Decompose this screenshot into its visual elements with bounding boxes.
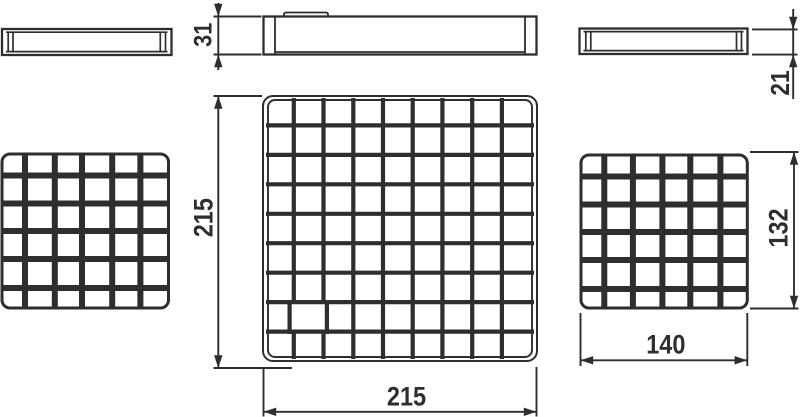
svg-text:132: 132 — [764, 208, 794, 247]
svg-text:21: 21 — [767, 70, 796, 95]
svg-text:31: 31 — [189, 23, 217, 47]
svg-text:140: 140 — [646, 330, 685, 360]
svg-text:215: 215 — [387, 382, 426, 412]
svg-text:215: 215 — [189, 198, 219, 237]
